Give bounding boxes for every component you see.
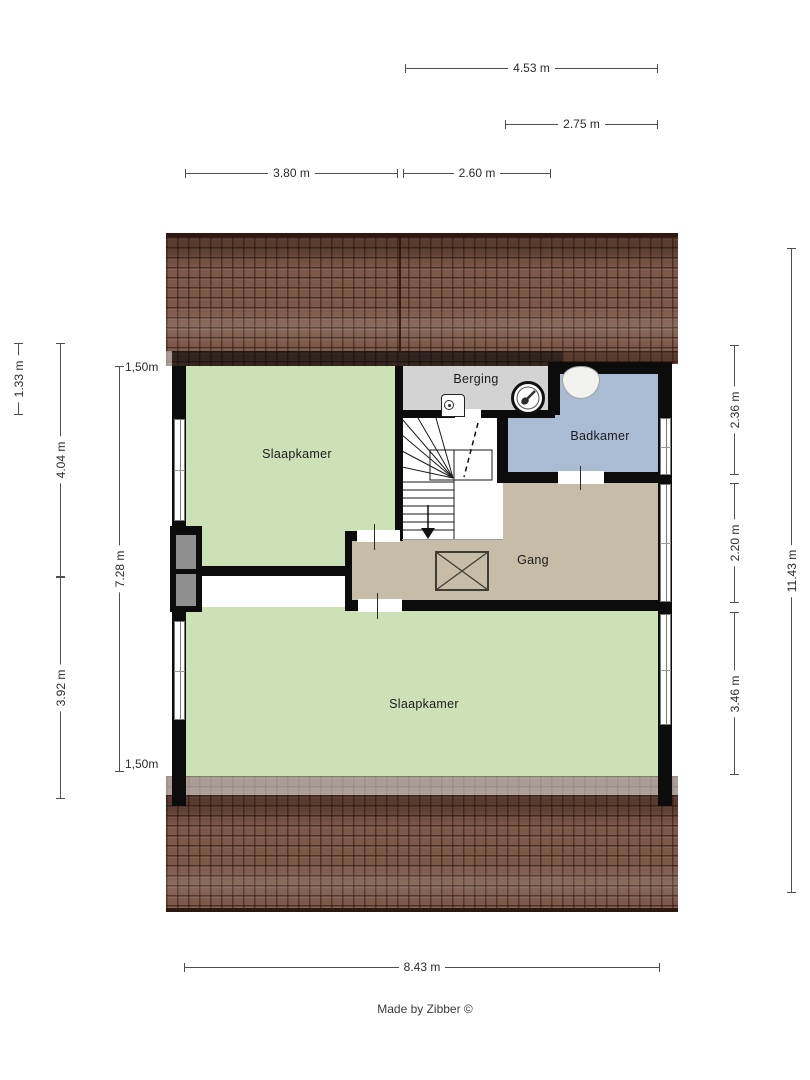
- room-label-gang: Gang: [517, 553, 549, 567]
- roof-ridge-line: [399, 236, 401, 351]
- dimension-label: 1.33 m: [12, 356, 26, 403]
- staircase: [402, 415, 503, 540]
- wall-slaapkamer-top-bottom: [186, 566, 352, 576]
- dimension-label: 8.43 m: [399, 960, 446, 968]
- window-slaapkamer-top-left: [174, 419, 185, 521]
- roof-bottom: [166, 795, 678, 912]
- window-badkamer-right: [660, 418, 671, 475]
- dimension-bottom-1: 8.43 m: [184, 967, 660, 968]
- door-opening-slaapkamer-top: [357, 530, 400, 542]
- dimension-right-4: 11.43 m: [791, 248, 792, 893]
- height-marker-bottom: 1,50m: [125, 757, 158, 771]
- dimension-label: 3.92 m: [54, 665, 68, 712]
- dimension-top-1: 4.53 m: [405, 68, 658, 69]
- door-tick: [377, 593, 378, 619]
- dimension-right-2: 2.20 m: [734, 483, 735, 603]
- dimension-label: 3.80 m: [268, 166, 315, 174]
- dimension-label: 2.20 m: [728, 520, 742, 567]
- dimension-label: 7.28 m: [113, 546, 127, 593]
- dimension-left-3: 3.92 m: [60, 577, 61, 799]
- roof-top-overlap: [166, 351, 562, 366]
- chimney-flue: [176, 574, 196, 606]
- dimension-right-1: 2.36 m: [734, 345, 735, 475]
- dimension-left-4: 7.28 m: [119, 366, 120, 772]
- stair-direction-arrow: [421, 528, 435, 539]
- height-marker-top: 1,50m: [125, 360, 158, 374]
- chimney-flue: [176, 535, 196, 569]
- door-opening-badkamer: [558, 471, 604, 484]
- dimension-top-4: 2.60 m: [403, 173, 551, 174]
- dimension-right-3: 3.46 m: [734, 612, 735, 775]
- washing-machine-icon: [441, 394, 465, 417]
- dimension-label: 4.53 m: [508, 61, 555, 69]
- credit-text: Made by Zibber ©: [377, 1002, 473, 1016]
- window-gang-right: [660, 484, 671, 602]
- room-label-slaapkamer-bottom: Slaapkamer: [389, 697, 459, 711]
- roof-window-icon: [435, 551, 489, 591]
- room-label-badkamer: Badkamer: [570, 429, 629, 443]
- room-slaapkamer-top-floor-ext: [186, 540, 345, 567]
- dimension-label: 4.04 m: [54, 437, 68, 484]
- floorplan-canvas: Slaapkamer Berging Badkamer Gang Slaapka…: [0, 0, 810, 1080]
- room-label-berging: Berging: [453, 372, 498, 386]
- dimension-left-2: 4.04 m: [60, 343, 61, 577]
- boiler-icon: [511, 381, 545, 415]
- dimension-label: 2.75 m: [558, 117, 605, 125]
- window-slaapkamer-bottom-left: [174, 621, 185, 720]
- dimension-label: 11.43 m: [785, 544, 799, 596]
- dimension-label: 3.46 m: [728, 670, 742, 717]
- dimension-left-1: 1.33 m: [18, 343, 19, 415]
- exterior-wall-right-stub: [658, 762, 672, 806]
- door-opening-slaapkamer-bottom: [358, 599, 402, 612]
- dimension-top-2: 2.75 m: [505, 124, 658, 125]
- room-label-slaapkamer-top: Slaapkamer: [262, 447, 332, 461]
- roof-bottom-overlap: [166, 776, 678, 795]
- door-tick: [374, 524, 375, 550]
- dimension-top-3: 3.80 m: [185, 173, 398, 174]
- dimension-label: 2.60 m: [454, 166, 501, 174]
- exterior-wall-left-stub: [172, 762, 186, 806]
- roof-top: [166, 233, 678, 351]
- dimension-label: 2.36 m: [728, 387, 742, 434]
- door-tick: [580, 466, 581, 490]
- window-slaapkamer-bottom-right: [660, 614, 671, 725]
- room-slaapkamer-bottom-floor: [186, 607, 658, 777]
